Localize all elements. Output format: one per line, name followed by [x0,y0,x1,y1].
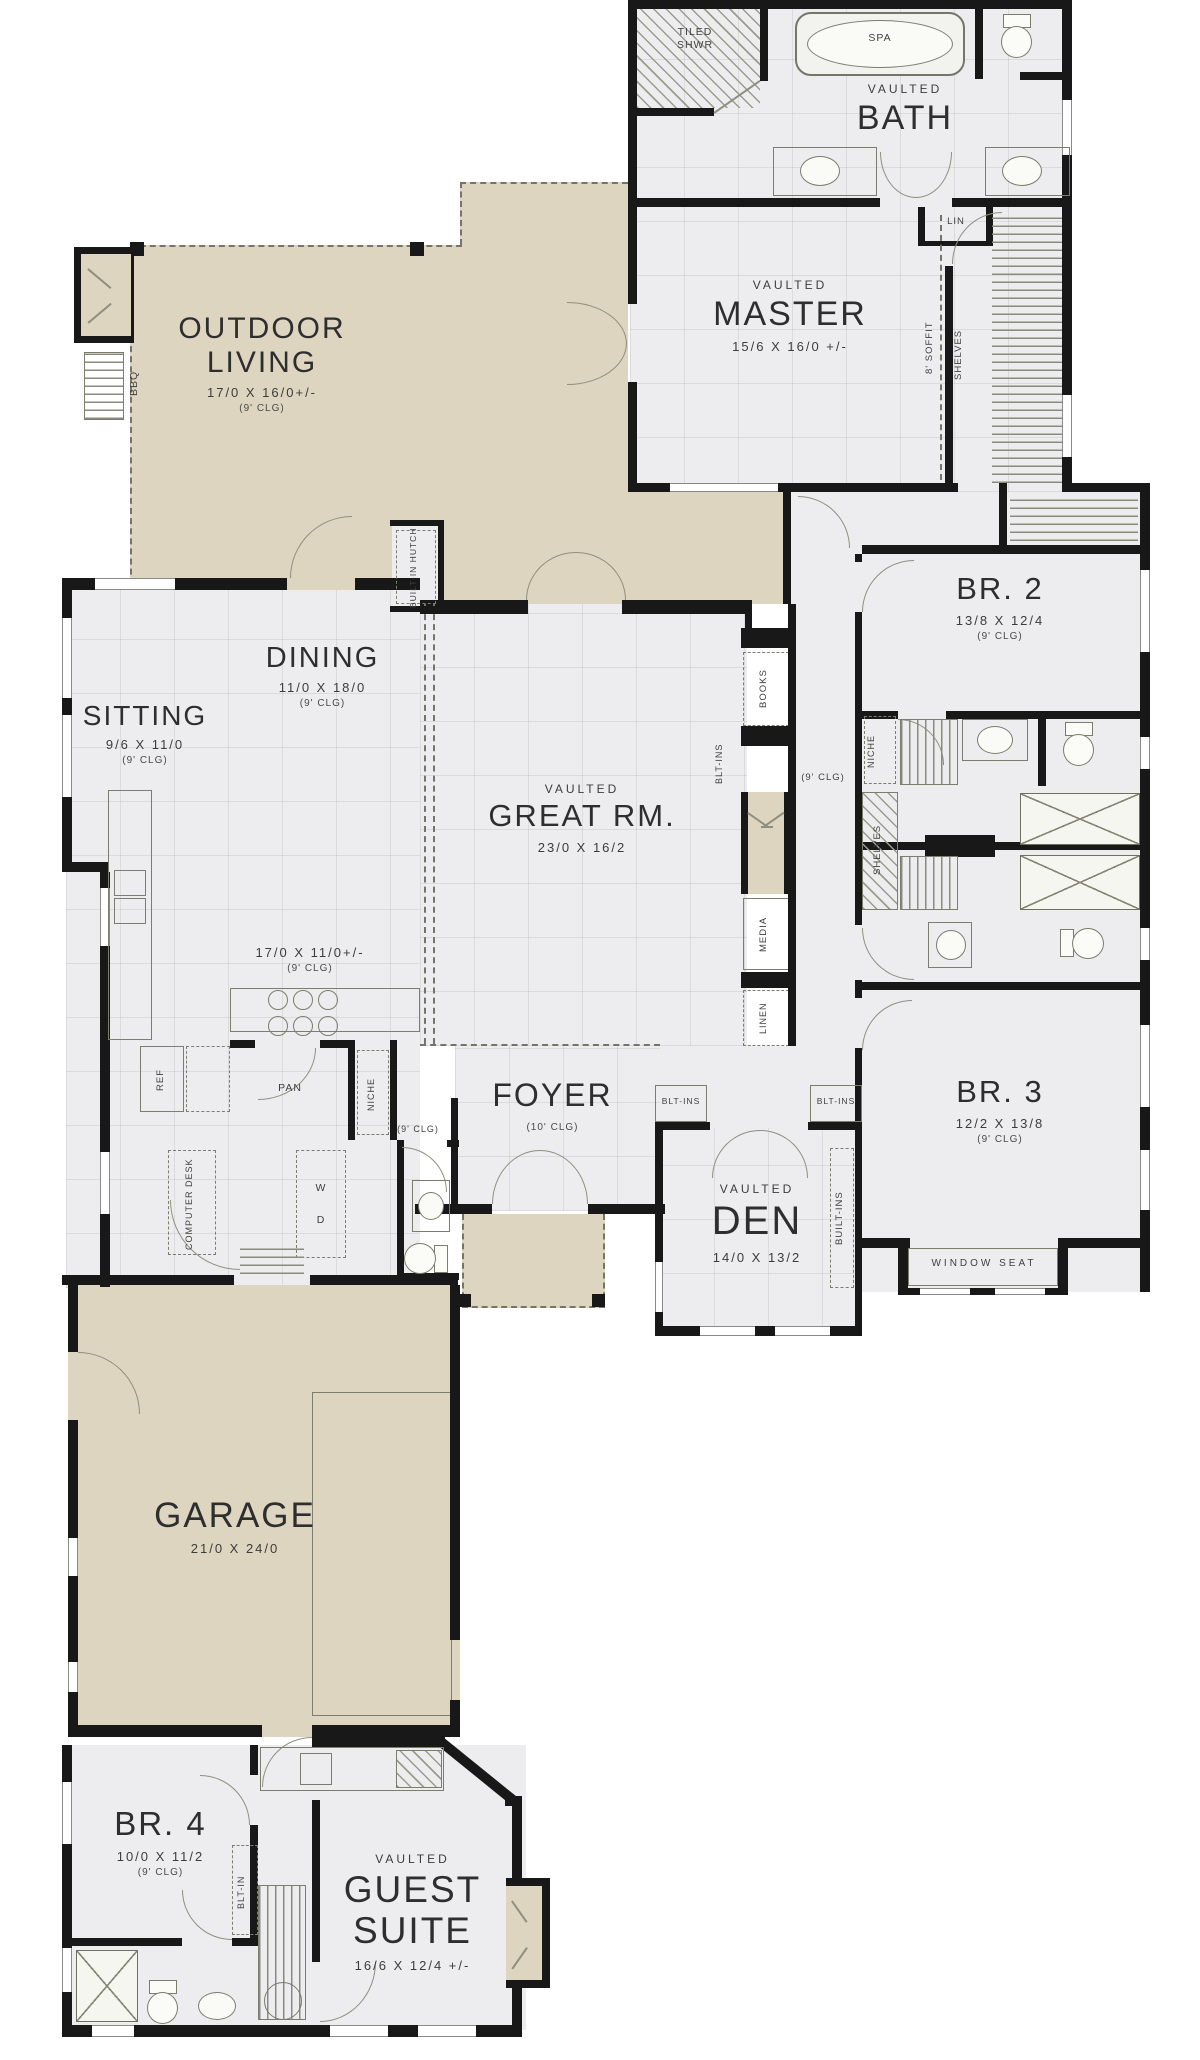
wall [862,982,1150,990]
room-label-master: VAULTED MASTER 15/6 X 16/0 +/- [700,278,880,354]
wall [512,1800,522,1880]
room-clg: (9' CLG) [977,631,1022,642]
window [68,1662,78,1692]
label-window-seat: WINDOW SEAT [908,1258,1060,1270]
wall [250,1745,258,1775]
window [68,1538,78,1576]
wall [655,1326,862,1336]
wall [783,490,791,604]
label-tiled-shwr: TILED SHWR [660,26,730,51]
room-dims: 12/2 X 13/8 [956,1116,1045,1131]
wall [1058,1238,1150,1248]
wall [451,1098,458,1211]
fireplace-side [542,1886,550,1980]
room-pre: VAULTED [868,82,943,96]
wall [62,1745,72,1782]
closet-shelf-hatch [1010,495,1138,541]
wall [397,1140,402,1147]
room-label-br4: BR. 4 10/0 X 11/2 (9' CLG) [78,1806,243,1878]
wall [918,207,925,245]
wall [628,483,670,492]
wall [788,604,796,1046]
room-name: MASTER [713,295,867,333]
room-divider-dashed [424,604,426,1044]
label-books: BOOKS [758,652,772,726]
toilet-icon [146,1980,180,2026]
wall [855,1140,862,1336]
wall [628,382,637,492]
wall [62,1844,72,1948]
fireplace-side [741,792,748,894]
label-pan: PAN [262,1082,318,1095]
wall [628,0,1072,9]
tub [1020,793,1140,845]
room-name: FOYER [492,1078,612,1114]
room-name: BR. 2 [956,572,1044,607]
room-dims: 17/0 X 16/0+/- [207,385,317,400]
room-dims: 11/0 X 18/0 [279,680,367,695]
cooktop-burners [268,990,348,1036]
room-divider-dashed [420,1044,660,1046]
room-clg: (9' CLG) [239,403,284,414]
label-blt-ins-den-right: BLT-INS [812,1096,860,1106]
courtyard-strip [628,490,788,604]
label-blt-in-br4: BLT-IN [236,1852,250,1932]
closet-shelf-hatch [992,215,1062,483]
wall [225,578,287,590]
outdoor-fireplace [74,247,134,343]
room-label-garage: GARAGE 21/0 X 24/0 [145,1496,325,1556]
wall [655,1122,710,1130]
window [1062,395,1072,457]
wall [855,554,862,562]
window [92,2025,134,2037]
label-lin: LIN [936,216,976,227]
entry-porch [462,1214,605,1308]
wall [438,520,444,612]
room-dims: 23/0 X 16/2 [538,840,627,855]
window [995,1288,1045,1295]
shower [1020,855,1140,910]
window [95,578,175,590]
room-pre: VAULTED [545,782,620,796]
label-blt-ins-den-left: BLT-INS [657,1096,705,1106]
room-clg: (10' CLG) [526,1122,578,1133]
wall [1038,719,1046,786]
shower [76,1950,138,2022]
window [775,1326,830,1336]
wall [855,612,862,925]
room-name: DEN [712,1199,802,1244]
washer-dryer [296,1150,346,1258]
room-name: BR. 3 [956,1075,1044,1110]
firebox-line [761,826,773,828]
built-in-cap [741,726,791,746]
wall [390,520,444,526]
toilet-icon [1062,722,1096,768]
room-dims: 10/0 X 11/2 [117,1849,205,1864]
label-spa: SPA [860,32,900,45]
wall [68,1576,78,1662]
outdoor-living-patio [130,245,628,605]
window [330,2025,388,2037]
bbq-grill [84,352,124,420]
wall [312,1725,460,1737]
wall [1007,545,1150,554]
kitchenette-sink [300,1753,332,1785]
wall [312,1800,320,1962]
room-label-kitchen: 17/0 X 11/0+/- (9' CLG) [240,945,380,974]
wall [628,600,752,614]
room-label-dining: DINING 11/0 X 18/0 (9' CLG) [240,642,405,709]
room-dims: 14/0 X 13/2 [713,1250,802,1265]
wall [952,198,1072,207]
toilet-icon [1060,926,1106,960]
window [670,483,778,492]
label-shelves-master: SHELVES [953,305,967,405]
label-computer-desk: COMPUTER DESK [184,1150,200,1258]
wall [310,1275,458,1285]
porch-post [592,1294,605,1307]
room-label-br3: BR. 3 12/2 X 13/8 (9' CLG) [915,1075,1085,1145]
sink-icon [800,156,840,186]
wall [68,1285,78,1352]
window [62,1948,72,1992]
wall [348,1040,355,1140]
window [655,1262,663,1312]
wall [628,198,880,207]
wall [72,1938,182,1946]
room-name: GARAGE [154,1496,316,1535]
label-hutch: BUILT-IN HUTCH [408,528,424,608]
room-pre: VAULTED [375,1852,450,1866]
label-dryer: D [314,1214,328,1227]
wall [68,1725,262,1737]
built-in-cap [741,628,791,648]
window [62,1782,72,1844]
soffit-dashed [940,215,942,480]
label-ref: REF [155,1058,169,1102]
label-niche-mud: NICHE [366,1064,379,1124]
wall [975,9,983,79]
room-label-outdoor: OUTDOOR LIVING 17/0 X 16/0+/- (9' CLG) [140,312,384,414]
room-label-great: VAULTED GREAT RM. 23/0 X 16/2 [452,782,712,855]
room-clg: (9' CLG) [122,755,167,766]
wall [862,545,1007,554]
room-label-sitting: SITTING 9/6 X 11/0 (9' CLG) [70,700,220,766]
room-label-den: VAULTED DEN 14/0 X 13/2 [672,1182,842,1265]
wall [450,1285,460,1640]
sink-icon [198,1992,236,2020]
wall [925,835,995,857]
wall [778,483,958,492]
room-name: GUEST SUITE [330,1869,495,1952]
floor-plan: OUTDOOR LIVING 17/0 X 16/0+/- (9' CLG) V… [0,0,1200,2060]
wall [628,9,637,205]
room-clg: (9' CLG) [300,698,345,709]
room-name: BATH [857,99,953,137]
label-linen: LINEN [758,992,772,1044]
window [100,1152,110,1214]
room-name: GREAT RM. [488,799,675,834]
window [920,1288,970,1295]
toilet-icon [1000,14,1034,60]
room-label-br2: BR. 2 13/8 X 12/4 (9' CLG) [920,572,1080,642]
kitchen-sink [114,870,146,896]
window [1140,1150,1150,1210]
wall [1062,483,1150,492]
wall [655,1130,663,1262]
room-pre: VAULTED [753,278,828,292]
room-label-foyer: FOYER (10' CLG) [475,1078,630,1133]
room-dims: 17/0 X 11/0+/- [255,945,364,960]
built-in-cap [741,972,791,988]
patio-edge-dashed [460,182,628,184]
porch-post [622,600,634,614]
window [1140,928,1150,960]
wall [68,1420,78,1538]
fireplace-side [506,1878,550,1886]
label-niche-hall: NICHE [866,720,879,782]
room-dims: 21/0 X 24/0 [191,1541,280,1556]
wall [588,1204,665,1214]
label-washer: W [314,1182,328,1195]
window [62,618,72,698]
kitchenette-cabinet [396,1750,442,1788]
label-shelves-hall: SHELVES [872,800,886,900]
wall [232,1938,258,1946]
label-media: MEDIA [758,902,772,966]
patio-upper-strip [460,182,628,248]
entry-steps [240,1246,304,1274]
label-bbq: BBQ [128,352,142,414]
wall [62,862,108,872]
wall [447,1140,459,1147]
label-clg9-hall: (9' CLG) [795,772,851,783]
room-name: BR. 4 [114,1806,207,1843]
toilet-icon [402,1242,448,1276]
cabinet-dashed [186,1046,230,1112]
window [1140,737,1150,769]
sink-icon [977,726,1013,754]
wall [898,1238,908,1295]
room-clg: (9' CLG) [138,1867,183,1878]
wardrobe-hatch [900,719,958,785]
wall [628,205,637,304]
wall [946,711,1150,719]
room-dims: 16/6 X 12/4 +/- [355,1958,471,1973]
room-name: OUTDOOR LIVING [162,312,362,379]
room-label-bath: VAULTED BATH [835,82,975,137]
wall [312,1737,445,1747]
wall [808,1122,862,1130]
label-built-ins-br3: BUILT-INS [834,1158,848,1278]
label-blt-ins-column: BLT-INS [714,732,728,796]
wall [745,604,752,628]
wall [945,266,953,483]
window [1140,1025,1150,1107]
wall [1020,72,1072,80]
wall [512,1985,522,2037]
wall [760,9,768,81]
window [418,2025,476,2037]
parking-pad [312,1392,452,1716]
room-dims: 13/8 X 12/4 [956,613,1045,628]
wardrobe-hatch [900,856,958,910]
sink-icon [1002,156,1042,186]
patio-edge-dashed [460,182,462,245]
wall [62,1275,234,1285]
water-heater [264,1982,302,2020]
room-divider-dashed [433,604,435,1044]
wall [230,1040,255,1048]
sink-icon [936,930,966,960]
sink-icon [418,1192,444,1220]
label-clg9-mud: (9' CLG) [392,1124,444,1135]
porch-post [410,242,424,256]
room-name: SITTING [83,700,207,731]
porch-post [516,600,528,614]
wall [999,483,1007,554]
window [1140,570,1150,652]
room-clg: (9' CLG) [977,1134,1022,1145]
room-clg: (9' CLG) [287,963,332,974]
room-pre: VAULTED [720,1182,795,1196]
room-dims: 15/6 X 16/0 +/- [732,339,848,354]
wall [628,108,714,116]
window [700,1326,755,1336]
room-name: DINING [266,642,380,674]
room-label-guest: VAULTED GUEST SUITE 16/6 X 12/4 +/- [325,1852,500,1973]
kitchen-sink [114,898,146,924]
wall [855,980,862,998]
label-soffit: 8' SOFFIT [924,300,938,395]
room-dims: 9/6 X 11/0 [106,737,184,752]
